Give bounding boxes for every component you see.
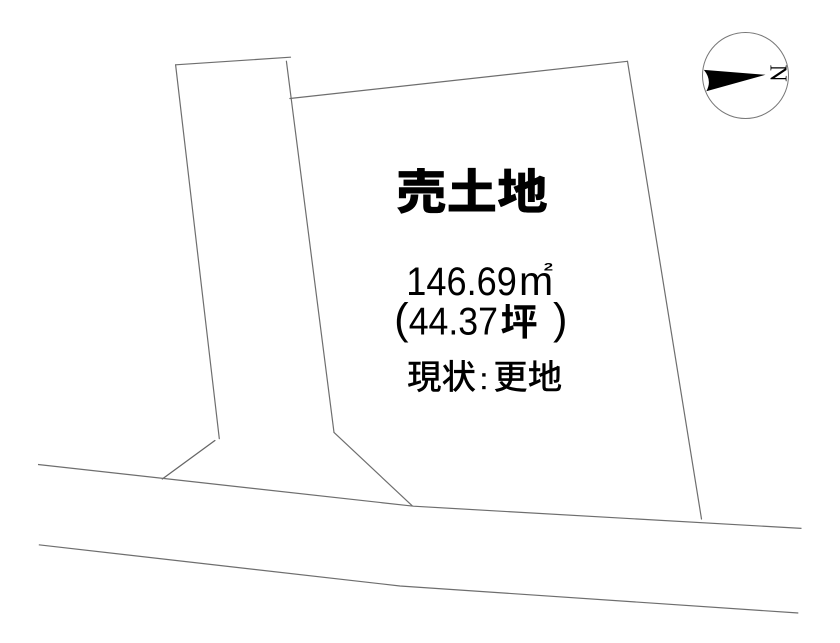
svg-text:(: ( xyxy=(394,296,409,344)
svg-text:44.37: 44.37 xyxy=(409,301,498,344)
svg-text:146.69: 146.69 xyxy=(406,260,517,304)
svg-text:): ) xyxy=(553,296,568,344)
svg-text:N: N xyxy=(765,65,791,82)
svg-text:2: 2 xyxy=(544,261,553,274)
